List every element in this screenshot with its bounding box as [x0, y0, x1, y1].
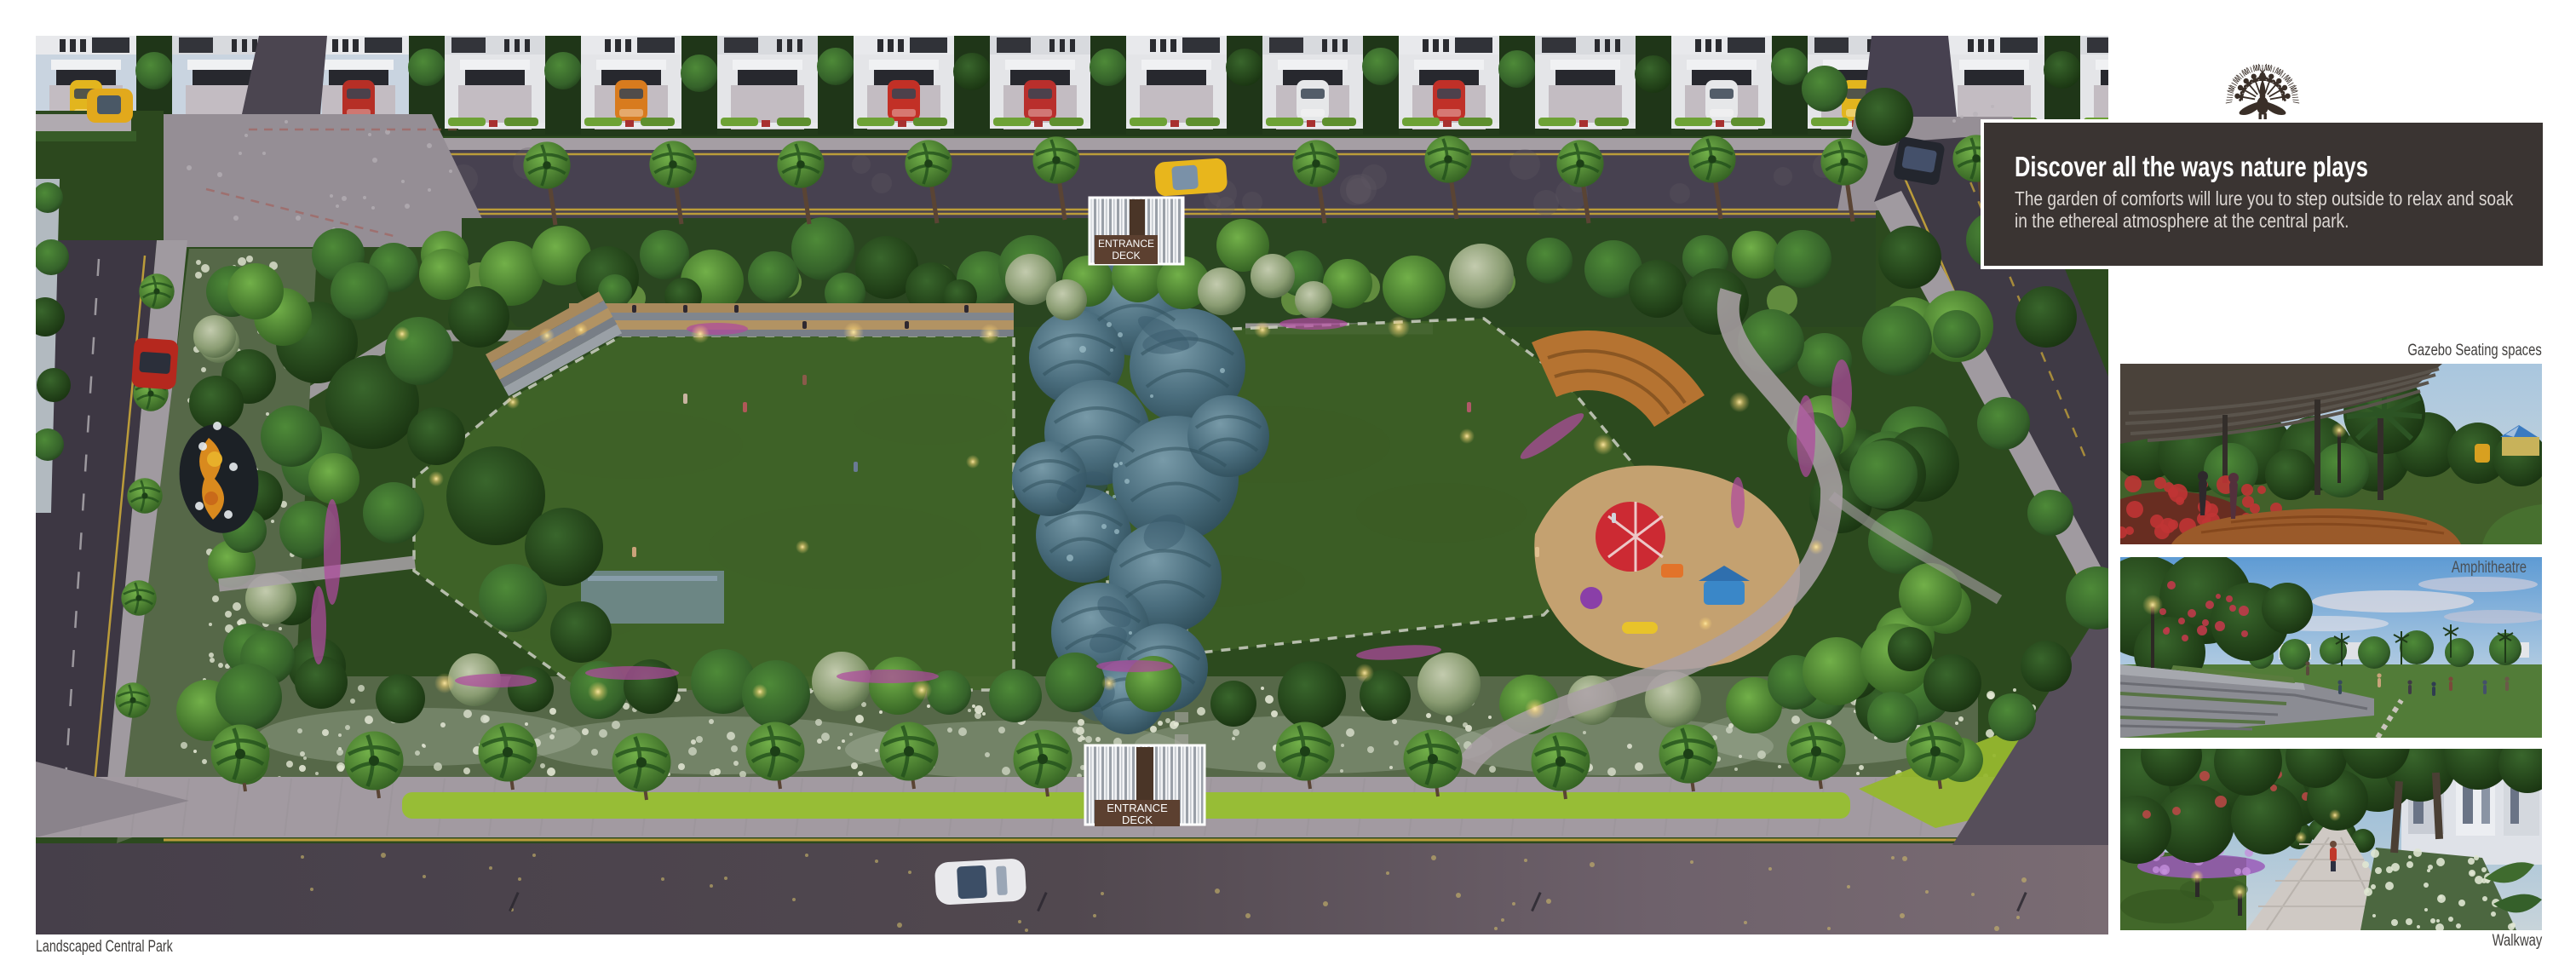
svg-text:ENTRANCE: ENTRANCE [1098, 238, 1154, 250]
svg-text:DECK: DECK [1122, 814, 1153, 826]
svg-text:ENTRANCE: ENTRANCE [1107, 802, 1168, 814]
svg-text:DECK: DECK [1112, 250, 1140, 262]
